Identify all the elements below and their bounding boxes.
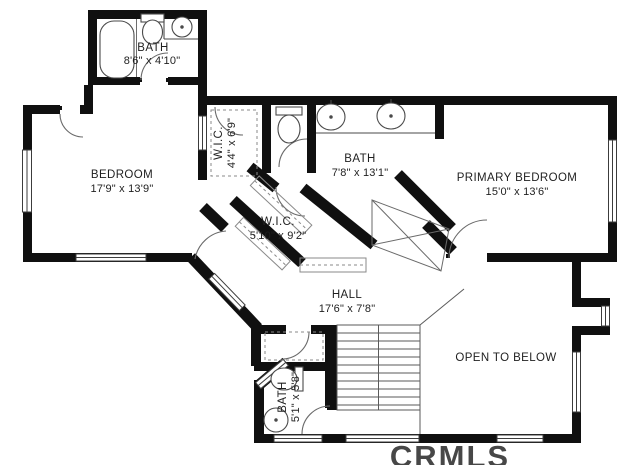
- door-arc-closet: [283, 332, 309, 359]
- door-arc-bedroom-corner: [195, 231, 226, 259]
- hall-label: HALL: [332, 289, 363, 301]
- window-primary-right: [609, 140, 617, 222]
- window-lower-right: [573, 352, 581, 412]
- railing-open-below: [420, 289, 464, 325]
- primary-bedroom-label: PRIMARY BEDROOM: [457, 172, 578, 184]
- door-arc-toilet-room: [279, 139, 307, 167]
- toilet-icon-top: [141, 14, 164, 44]
- crmls-watermark: CRMLS: [390, 439, 510, 465]
- wic-shelf-bottom: [300, 258, 366, 272]
- window-bedroom-left: [23, 150, 32, 212]
- bath-mid-label: BATH: [344, 153, 375, 165]
- bath-mid-dims: 7'8" x 13'1": [332, 167, 389, 179]
- window-notch: [602, 306, 610, 326]
- window-bedroom-bottom: [76, 254, 146, 261]
- bathtub-icon: [100, 21, 134, 78]
- wic-large-label: W.I.C.: [261, 216, 295, 228]
- bedroom-dims: 17'9" x 13'9": [91, 183, 154, 195]
- hall-dims: 17'6" x 7'8": [319, 303, 376, 315]
- windows: [23, 116, 617, 442]
- bath-bottom-dims: 5'1" x 5'8": [290, 372, 302, 422]
- sink-icon-top: [164, 17, 198, 39]
- floor-plan-page: BATH 8'6" x 4'10" BEDROOM 17'9" x 13'9" …: [0, 0, 640, 465]
- toilet-icon-mid: [276, 107, 302, 143]
- door-arc-primary: [449, 220, 487, 258]
- window-diagonal-hall: [209, 273, 245, 310]
- door-arc-bath-bottom: [302, 406, 330, 434]
- bedroom-label: BEDROOM: [91, 169, 153, 181]
- pocket-door-wic-small: [199, 116, 207, 150]
- wic-large-dims: 5'10" x 9'2": [250, 230, 307, 242]
- window-bottom-1: [274, 435, 322, 442]
- primary-bedroom-dims: 15'0" x 13'6": [486, 186, 549, 198]
- bath-top-label: BATH: [137, 42, 168, 54]
- floor-plan-svg: BATH 8'6" x 4'10" BEDROOM 17'9" x 13'9" …: [0, 0, 640, 465]
- wic-small-dims: 4'4" x 6'9": [226, 118, 238, 168]
- open-to-below-label: OPEN TO BELOW: [455, 352, 556, 364]
- bath-top-dims: 8'6" x 4'10": [124, 55, 181, 67]
- door-arc-bedroom-top: [60, 114, 83, 137]
- bath-bottom-label: BATH: [277, 381, 289, 412]
- wic-small-label: W.I.C.: [213, 126, 225, 160]
